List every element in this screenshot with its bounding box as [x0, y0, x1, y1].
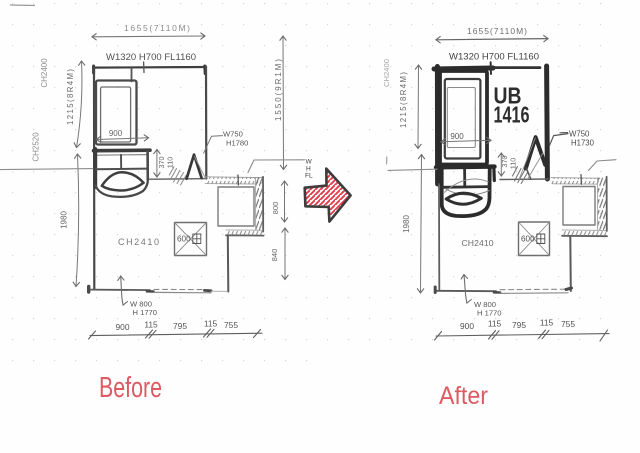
svg-text:W1320 H700 FL1160: W1320 H700 FL1160	[106, 52, 196, 63]
svg-text:1550(9R1M): 1550(9R1M)	[274, 59, 283, 121]
svg-text:W750: W750	[223, 130, 243, 139]
svg-text:CH2400: CH2400	[382, 59, 391, 87]
svg-text:110: 110	[165, 157, 174, 168]
svg-text:1215(8R4M): 1215(8R4M)	[399, 72, 408, 128]
svg-text:FL: FL	[305, 173, 313, 180]
svg-text:840: 840	[270, 249, 279, 262]
svg-text:900: 900	[450, 132, 464, 141]
svg-text:CH2400: CH2400	[40, 58, 49, 88]
svg-text:1416: 1416	[494, 102, 530, 128]
svg-text:H: H	[306, 166, 311, 173]
svg-text:1980: 1980	[60, 211, 69, 229]
svg-text:115: 115	[144, 320, 158, 330]
svg-text:W750: W750	[569, 130, 590, 139]
svg-text:900: 900	[109, 129, 123, 138]
svg-text:H1730: H1730	[571, 139, 595, 148]
svg-text:600: 600	[177, 235, 191, 244]
svg-text:1215(8R4M): 1215(8R4M)	[66, 69, 75, 125]
svg-text:CH2410: CH2410	[462, 238, 494, 248]
svg-text:W: W	[306, 159, 313, 166]
svg-text:795: 795	[173, 321, 187, 331]
svg-text:600: 600	[521, 235, 535, 244]
svg-text:755: 755	[561, 319, 575, 329]
svg-text:900: 900	[460, 321, 474, 331]
svg-text:900: 900	[116, 322, 130, 332]
svg-text:115: 115	[204, 319, 218, 329]
svg-text:800: 800	[271, 202, 280, 215]
svg-text:755: 755	[224, 320, 238, 330]
svg-text:After: After	[439, 382, 488, 410]
svg-text:795: 795	[512, 320, 526, 330]
svg-text:CH2520: CH2520	[32, 132, 41, 162]
svg-text:1655(7110M): 1655(7110M)	[124, 23, 190, 33]
svg-text:W1320 H700 FL1160: W1320 H700 FL1160	[449, 52, 539, 63]
svg-text:H 1770: H 1770	[133, 308, 158, 317]
svg-text:1655(7110M): 1655(7110M)	[467, 26, 527, 36]
svg-text:1980: 1980	[402, 215, 411, 233]
svg-text:110: 110	[509, 158, 518, 169]
svg-text:H1780: H1780	[226, 139, 248, 148]
svg-text:Before: Before	[99, 372, 162, 404]
svg-text:115: 115	[540, 318, 554, 328]
svg-text:115: 115	[488, 319, 502, 329]
svg-text:H 1770: H 1770	[477, 309, 502, 318]
